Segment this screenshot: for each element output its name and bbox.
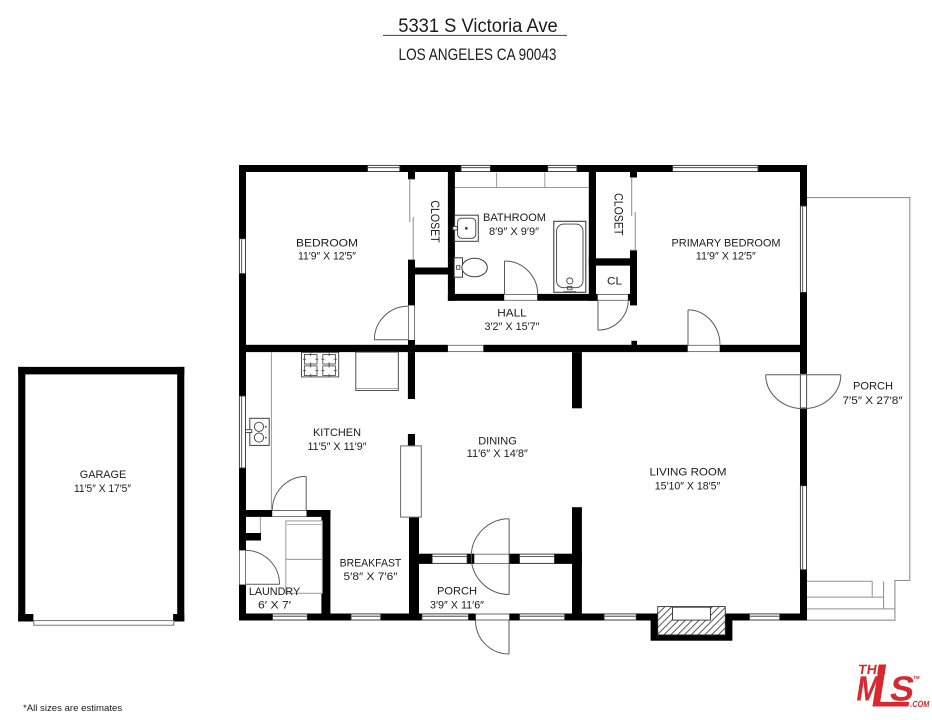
svg-text:CL: CL <box>607 276 622 288</box>
svg-text:3′2″ X 15′7″: 3′2″ X 15′7″ <box>485 321 540 333</box>
svg-text:CLOSET: CLOSET <box>611 193 625 236</box>
svg-text:LAUNDRY: LAUNDRY <box>249 586 301 598</box>
svg-text:LIVING ROOM: LIVING ROOM <box>650 466 727 478</box>
svg-text:TM: TM <box>913 675 921 680</box>
svg-text:.COM: .COM <box>910 699 931 709</box>
svg-text:6′ X 7′: 6′ X 7′ <box>258 599 291 611</box>
svg-text:7′5″ X 27′8″: 7′5″ X 27′8″ <box>843 395 903 407</box>
svg-text:11′5″ X 17′5″: 11′5″ X 17′5″ <box>74 483 131 495</box>
svg-text:KITCHEN: KITCHEN <box>313 427 361 439</box>
svg-text:CLOSET: CLOSET <box>428 200 442 243</box>
svg-text:11′9″ X 12′5″: 11′9″ X 12′5″ <box>298 251 356 263</box>
svg-text:11′6″ X 14′8″: 11′6″ X 14′8″ <box>467 448 528 460</box>
svg-text:GARAGE: GARAGE <box>80 469 127 481</box>
svg-text:11′5″ X 11′9″: 11′5″ X 11′9″ <box>308 441 367 453</box>
svg-text:PORCH: PORCH <box>853 381 893 393</box>
svg-text:5′8″ X 7′6″: 5′8″ X 7′6″ <box>344 571 398 583</box>
svg-text:DINING: DINING <box>478 435 517 447</box>
svg-text:PORCH: PORCH <box>437 586 477 598</box>
svg-text:LOS ANGELES CA 90043: LOS ANGELES CA 90043 <box>399 45 557 64</box>
svg-text:5331 S Victoria Ave: 5331 S Victoria Ave <box>398 15 558 37</box>
svg-text:*All sizes are estimates: *All sizes are estimates <box>23 703 122 714</box>
svg-text:8′9″ X 9′9″: 8′9″ X 9′9″ <box>489 226 539 238</box>
svg-text:BATHROOM: BATHROOM <box>483 212 546 224</box>
svg-text:11′9″ X 12′5″: 11′9″ X 12′5″ <box>696 251 756 263</box>
svg-text:PRIMARY BEDROOM: PRIMARY BEDROOM <box>672 238 781 250</box>
svg-text:BREAKFAST: BREAKFAST <box>340 557 402 569</box>
svg-text:HALL: HALL <box>497 307 527 319</box>
svg-text:15′10″ X 18′5″: 15′10″ X 18′5″ <box>655 480 721 492</box>
svg-text:3′9″ X 11′6″: 3′9″ X 11′6″ <box>430 599 484 611</box>
svg-text:BEDROOM: BEDROOM <box>296 238 358 250</box>
